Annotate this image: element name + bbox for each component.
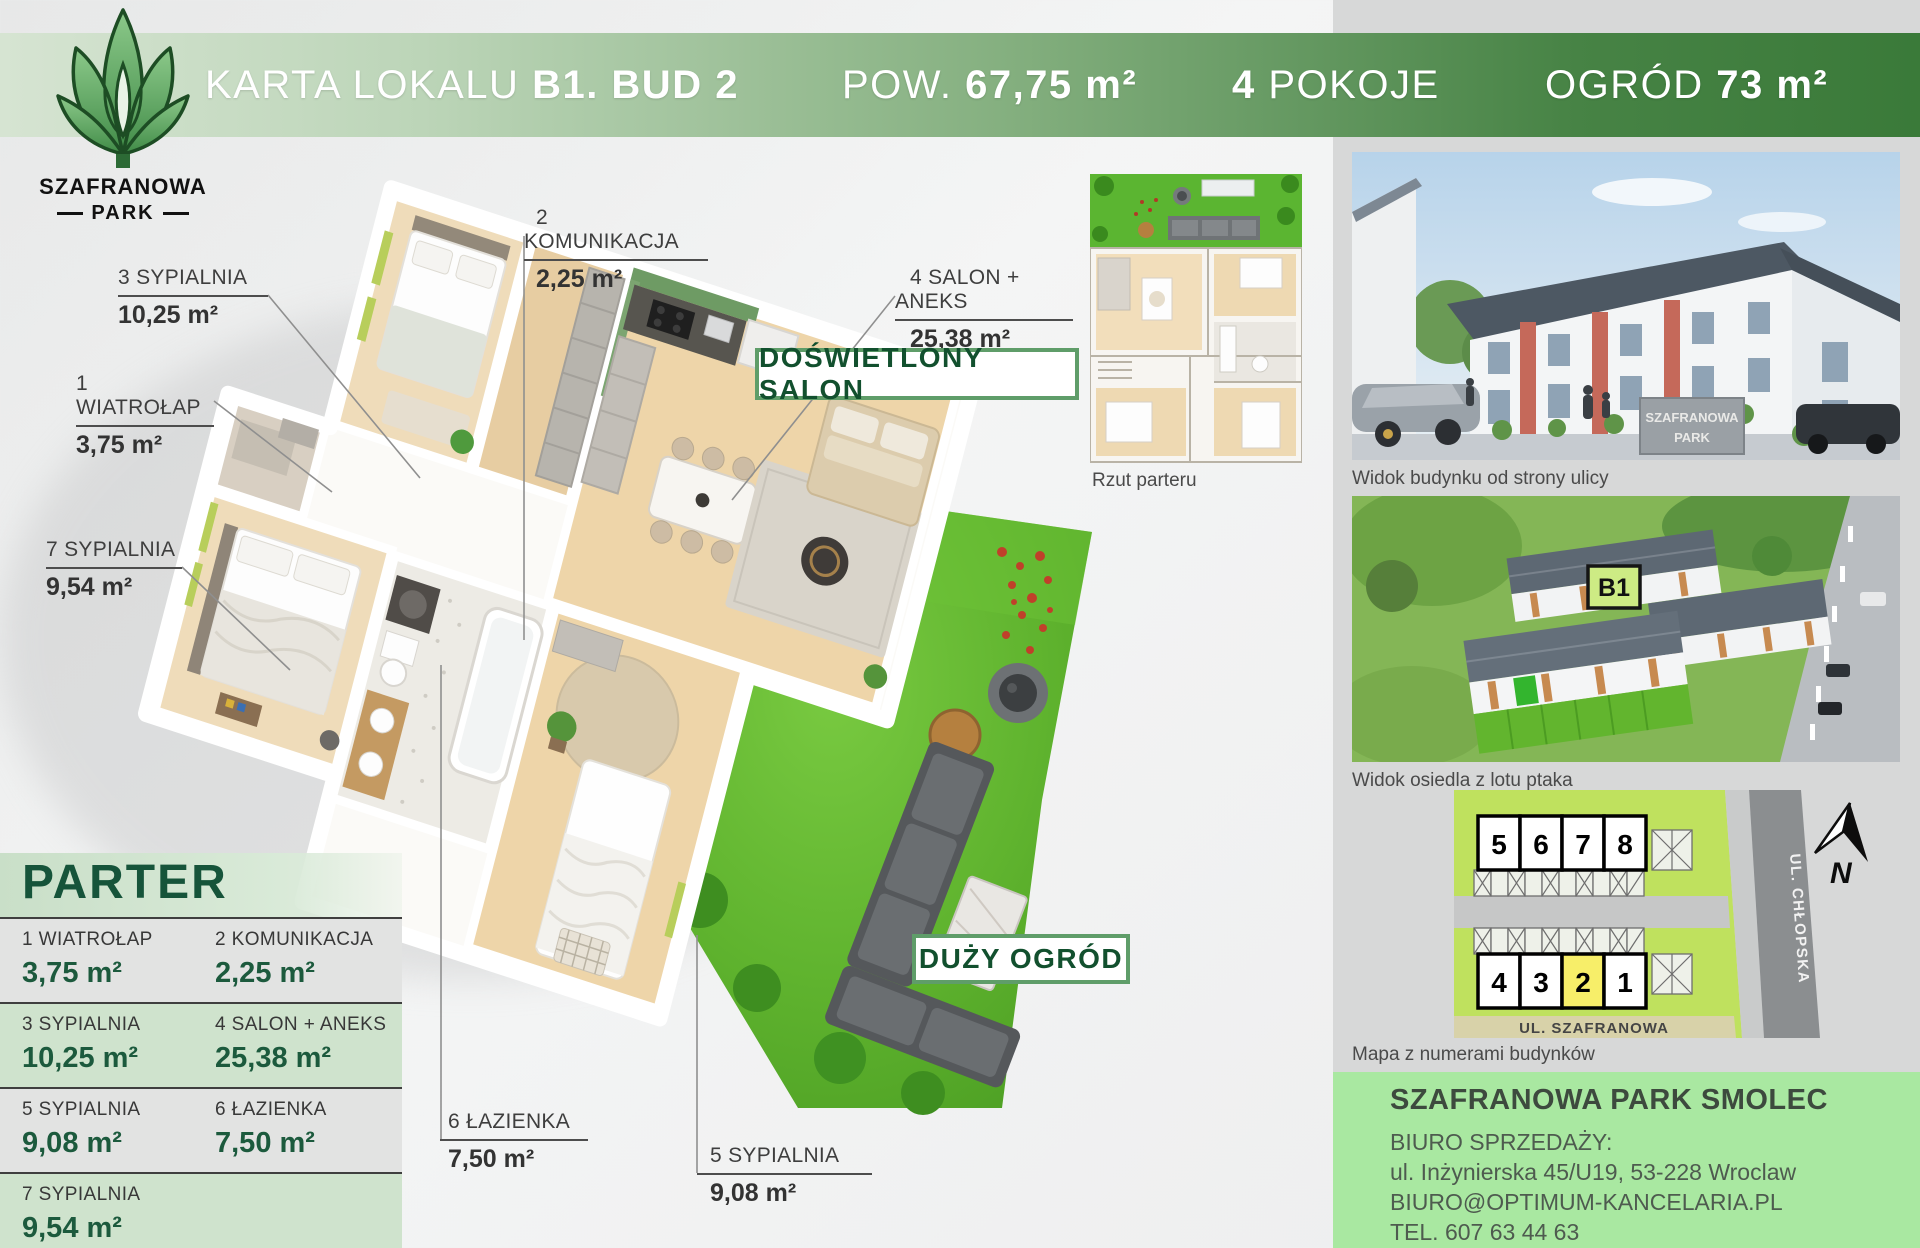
legend-row: 5 SYPIALNIA 9,08 m² 6 ŁAZIENKA 7,50 m² [0, 1087, 402, 1172]
site-map-graphic: 5 6 7 8 4 3 2 1 UL. SZAFRANOWA UL. CHŁOP… [1352, 788, 1920, 1040]
photo2-caption: Widok osiedla z lotu ptaka [1352, 770, 1573, 792]
stat-rooms-count: 4 [1232, 63, 1256, 107]
map-caption: Mapa z numerami budynków [1352, 1044, 1595, 1066]
room-bedroom3 [335, 195, 529, 468]
room-area: 9,08 m² [22, 1127, 193, 1160]
plan-label-komunikacja: 2 KOMUNIKACJA 2,25 m² [524, 206, 708, 294]
stat-garden: OGRÓD 73 m² [1545, 63, 1828, 108]
room-name: 1 WIATROŁAP [76, 372, 214, 427]
north-compass-icon: N [1815, 803, 1868, 890]
room-name: 1 WIATROŁAP [22, 929, 193, 951]
room-name: 2 KOMUNIKACJA [215, 929, 402, 951]
plan-label-wiatrolap: 1 WIATROŁAP 3,75 m² [76, 372, 214, 460]
room-area: 7,50 m² [440, 1145, 588, 1174]
buildings-row-bottom: 4 3 2 1 [1478, 954, 1646, 1008]
room-name: 3 SYPIALNIA [118, 266, 268, 297]
building-2: 2 [1575, 967, 1591, 998]
plan-label-lazienka: 6 ŁAZIENKA 7,50 m² [440, 1110, 588, 1174]
mini-floorplan-graphic [1090, 174, 1302, 466]
plan-label-sypialnia-7: 7 SYPIALNIA 9,54 m² [46, 538, 182, 602]
photo-street-view: SZAFRANOWA PARK [1352, 152, 1900, 460]
sign-line1: SZAFRANOWA [1645, 410, 1739, 425]
contact-block: SZAFRANOWA PARK SMOLEC BIURO SPRZEDAŻY: … [1333, 1072, 1920, 1248]
b1-badge-text: B1 [1598, 574, 1630, 602]
room-area: 7,50 m² [215, 1127, 402, 1160]
contact-office-label: BIURO SPRZEDAŻY: [1390, 1127, 1920, 1157]
room-name: 7 SYPIALNIA [22, 1184, 193, 1206]
card-title: KARTA LOKALU B1. BUD 2 [205, 63, 739, 108]
legend-cell: 1 WIATROŁAP 3,75 m² [0, 929, 193, 990]
brand-name-2: PARK [38, 202, 208, 225]
room-area: 3,75 m² [22, 957, 193, 990]
building-6: 6 [1533, 829, 1549, 860]
room-name: 6 ŁAZIENKA [215, 1099, 402, 1121]
legend-row: 7 SYPIALNIA 9,54 m² [0, 1172, 402, 1248]
building-8: 8 [1617, 829, 1633, 860]
room-name: 4 SALON + ANEKS [215, 1014, 402, 1036]
lokal-card-page: { "header": { "title_regular": "KARTA LO… [0, 0, 1920, 1248]
room-name: 6 ŁAZIENKA [440, 1110, 588, 1141]
plan-label-sypialnia-3: 3 SYPIALNIA 10,25 m² [118, 266, 268, 330]
room-lazienka [332, 555, 551, 849]
stat-area-value: 67,75 m² [965, 63, 1137, 107]
building-4: 4 [1491, 967, 1507, 998]
dash-right [163, 212, 189, 215]
street-view-render: SZAFRANOWA PARK [1352, 152, 1900, 460]
legend-cell-empty [193, 1184, 402, 1245]
room-name: 7 SYPIALNIA [46, 538, 182, 569]
room-area: 3,75 m² [76, 431, 214, 460]
plan-label-sypialnia-5: 5 SYPIALNIA 9,08 m² [697, 1144, 872, 1208]
parter-title: PARTER [0, 853, 402, 917]
legend-cell: 7 SYPIALNIA 9,54 m² [0, 1184, 193, 1245]
garden-sofa [823, 740, 1109, 1090]
brand-park: PARK [91, 202, 154, 225]
building-3: 3 [1533, 967, 1549, 998]
brand-name: SZAFRANOWA [38, 174, 208, 200]
stat-garden-value: 73 m² [1716, 63, 1828, 107]
building-7: 7 [1575, 829, 1591, 860]
b1-location-badge: B1 [1588, 566, 1640, 608]
site-map: 5 6 7 8 4 3 2 1 UL. SZAFRANOWA UL. CHŁOP… [1352, 788, 1920, 1040]
header-bar: KARTA LOKALU B1. BUD 2 POW. 67,75 m² 4 P… [0, 33, 1920, 137]
street-szafranowa-label: UL. SZAFRANOWA [1519, 1020, 1669, 1037]
legend-cell: 6 ŁAZIENKA 7,50 m² [193, 1099, 402, 1160]
flower-patch [997, 547, 1053, 654]
room-area: 2,25 m² [524, 265, 708, 294]
room-name: 3 SYPIALNIA [22, 1014, 193, 1036]
room-area: 2,25 m² [215, 957, 402, 990]
photo-aerial-view: B1 [1352, 496, 1900, 762]
aerial-view-render: B1 [1352, 496, 1900, 762]
compass-n-label: N [1830, 857, 1853, 890]
legend-cell: 5 SYPIALNIA 9,08 m² [0, 1099, 193, 1160]
badge-doswietlony-salon: DOŚWIETLONY SALON [755, 348, 1079, 400]
room-wiatrolap [212, 400, 325, 517]
legend-cell: 3 SYPIALNIA 10,25 m² [0, 1014, 193, 1075]
stat-rooms: 4 POKOJE [1232, 63, 1440, 108]
plan-label-salon: 4 SALON + ANEKS 25,38 m² [895, 266, 1073, 354]
room-bedroom7 [155, 491, 392, 769]
brand-logo: SZAFRANOWA PARK [38, 4, 208, 225]
parter-legend-panel: PARTER 1 WIATROŁAP 3,75 m² 2 KOMUNIKACJA… [0, 853, 402, 1248]
legend-cell: 2 KOMUNIKACJA 2,25 m² [193, 929, 402, 990]
stat-area-label: POW. [842, 63, 952, 107]
room-area: 10,25 m² [118, 301, 268, 330]
stat-area: POW. 67,75 m² [842, 63, 1137, 108]
badge-duzy-ogrod: DUŻY OGRÓD [912, 934, 1130, 984]
contact-title: SZAFRANOWA PARK SMOLEC [1390, 1084, 1920, 1117]
room-area: 10,25 m² [22, 1042, 193, 1075]
dash-left [57, 212, 83, 215]
card-title-label: KARTA LOKALU [205, 63, 519, 107]
stat-rooms-label: POKOJE [1268, 63, 1439, 107]
contact-phone: TEL. 607 63 44 63 [1390, 1217, 1920, 1247]
room-area: 25,38 m² [215, 1042, 402, 1075]
buildings-row-top: 5 6 7 8 [1478, 816, 1646, 870]
room-area: 9,54 m² [22, 1212, 193, 1245]
legend-row: 1 WIATROŁAP 3,75 m² 2 KOMUNIKACJA 2,25 m… [0, 917, 402, 1002]
room-name: 4 SALON + ANEKS [895, 266, 1073, 321]
fire-bowl [988, 663, 1048, 723]
room-name: 5 SYPIALNIA [697, 1144, 872, 1175]
room-name: 2 KOMUNIKACJA [524, 206, 708, 261]
photo1-caption: Widok budynku od strony ulicy [1352, 468, 1609, 490]
room-bedroom5 [468, 608, 746, 1010]
stat-garden-label: OGRÓD [1545, 63, 1704, 107]
mini-floorplan [1090, 174, 1302, 466]
garden-stool [930, 710, 980, 760]
room-area: 9,08 m² [697, 1179, 872, 1208]
card-title-unit: B1. BUD 2 [532, 63, 739, 107]
estate-sign: SZAFRANOWA PARK [1640, 398, 1744, 454]
room-name: 5 SYPIALNIA [22, 1099, 193, 1121]
contact-address: ul. Inżynierska 45/U19, 53-228 Wroclaw [1390, 1157, 1920, 1187]
legend-row: 3 SYPIALNIA 10,25 m² 4 SALON + ANEKS 25,… [0, 1002, 402, 1087]
garden-render [658, 505, 1108, 1115]
contact-email: BIURO@OPTIMUM-KANCELARIA.PL [1390, 1187, 1920, 1217]
building-5: 5 [1491, 829, 1507, 860]
lotus-flower-icon [48, 4, 198, 172]
sign-line2: PARK [1674, 430, 1710, 445]
building-1: 1 [1617, 967, 1633, 998]
legend-cell: 4 SALON + ANEKS 25,38 m² [193, 1014, 402, 1075]
room-area: 9,54 m² [46, 573, 182, 602]
mini-floorplan-caption: Rzut parteru [1092, 470, 1197, 492]
